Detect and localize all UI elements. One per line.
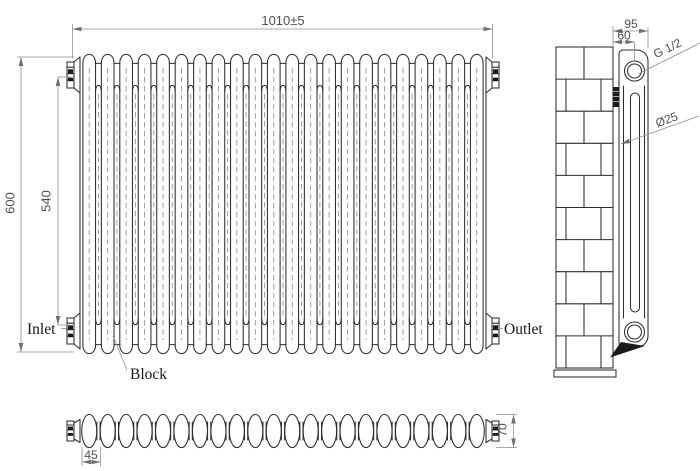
dim-pitch-label: 45 — [84, 448, 98, 462]
wall-base — [554, 370, 616, 377]
column-tube-slot — [631, 93, 640, 312]
dim-inner-height-label: 540 — [39, 190, 54, 212]
top-port-bore — [628, 64, 642, 78]
thread-label: G 1/2 — [651, 36, 684, 62]
bottom-port-bore — [628, 325, 642, 339]
dim-width-label: 1010±5 — [261, 13, 304, 28]
dim-height-label: 600 — [3, 192, 18, 214]
plan-pipe-flanges — [67, 421, 499, 441]
radiator-drawing-sheet: 1010±5 600 540 95 60 G 1/2 Ø25 45 — [0, 0, 700, 471]
wall-bracket — [613, 87, 619, 107]
block-label: Block — [130, 366, 167, 383]
plan-view — [67, 414, 499, 447]
inlet-label: Inlet — [27, 321, 56, 338]
foot-bracket-shadow — [610, 342, 645, 358]
radiator-columns — [83, 54, 483, 353]
outlet-label: Outlet — [504, 321, 543, 338]
front-view — [67, 54, 499, 353]
technical-drawing-canvas: 1010±5 600 540 95 60 G 1/2 Ø25 45 — [0, 0, 700, 471]
dim-wall-center-label: 60 — [617, 29, 631, 43]
dim-depth-label: 70 — [496, 423, 510, 437]
wall-brick-pattern — [556, 47, 613, 368]
plan-column-ovals — [82, 414, 485, 447]
tube-dia-label: Ø25 — [654, 109, 680, 130]
side-view — [554, 47, 648, 377]
